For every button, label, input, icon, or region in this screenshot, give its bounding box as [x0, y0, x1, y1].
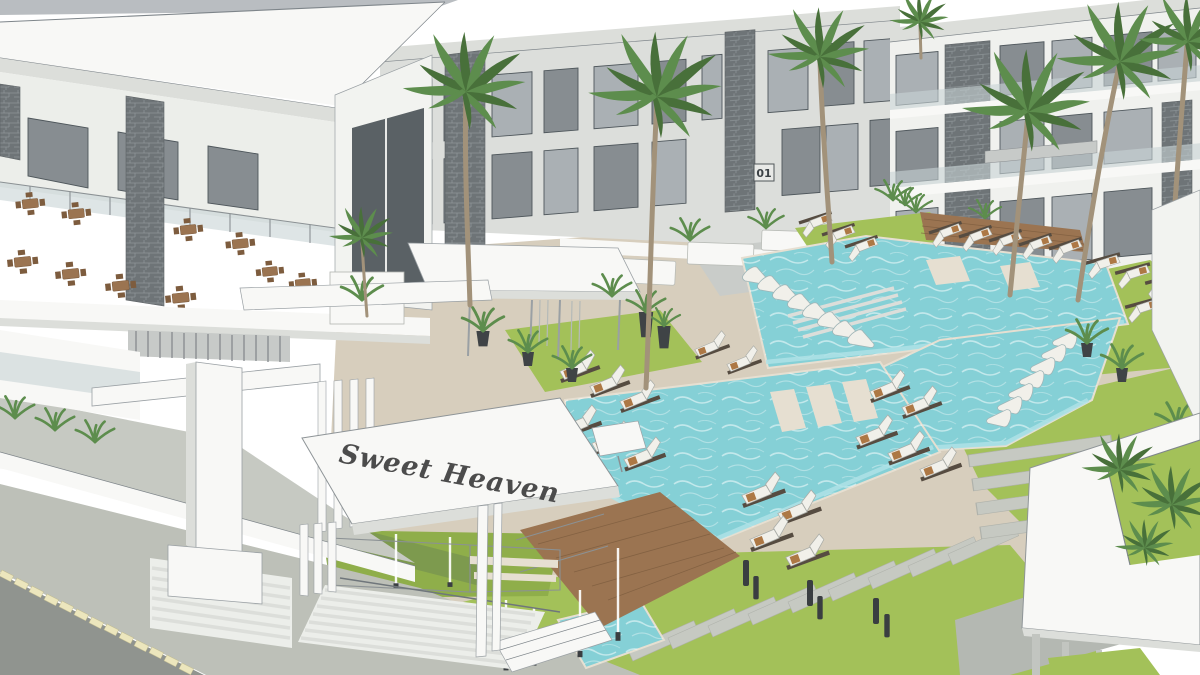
bollard	[873, 598, 879, 624]
pergola-column	[1032, 634, 1040, 675]
bollard	[743, 560, 749, 586]
block-number: 01	[756, 167, 771, 180]
bollard	[807, 580, 813, 606]
stone-column	[725, 30, 755, 212]
stone-pillar	[126, 96, 164, 306]
bollard	[753, 576, 758, 599]
stone-wall	[0, 84, 20, 160]
architectural-rendering: 01	[0, 0, 1200, 675]
resort-scene: 01	[0, 0, 1200, 675]
bollard	[884, 614, 889, 637]
bollard	[817, 596, 822, 619]
